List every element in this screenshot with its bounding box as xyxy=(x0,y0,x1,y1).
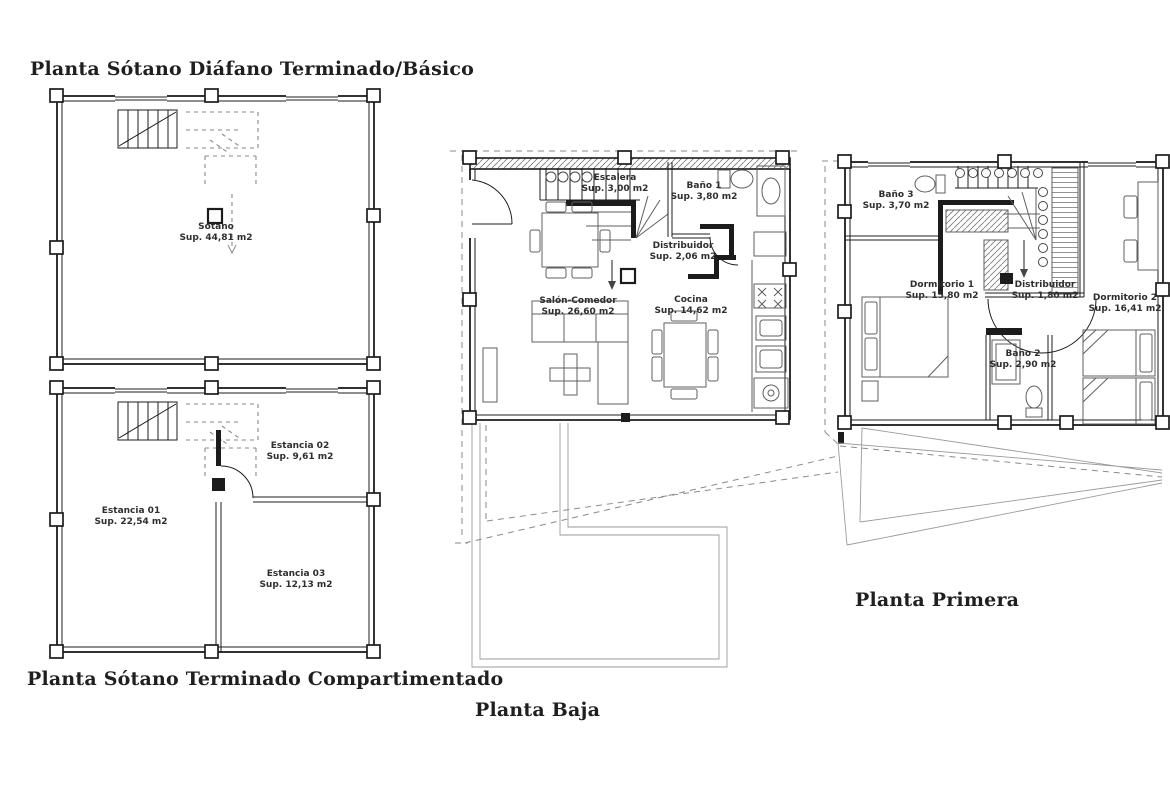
fridge-icon xyxy=(754,232,786,256)
room-area: Sup. 1,80 m2 xyxy=(1012,291,1079,302)
bed-icon xyxy=(862,297,948,401)
room-label-bano-2: Baño 2 Sup. 2,90 m2 xyxy=(990,349,1057,372)
room-label-dormitorio-2: Dormitorio 2 Sup. 16,41 m2 xyxy=(1088,293,1161,316)
room-label-salon-comedor: Salón-Comedor Sup. 26,60 m2 xyxy=(539,296,616,319)
room-label-estancia-01: Estancia 01 Sup. 22,54 m2 xyxy=(94,506,167,529)
room-area: Sup. 3,00 m2 xyxy=(582,184,649,195)
room-label-bano-3: Baño 3 Sup. 3,70 m2 xyxy=(863,190,930,213)
room-label-cocina: Cocina Sup. 14,62 m2 xyxy=(654,295,727,318)
bed-icon xyxy=(1083,378,1155,424)
room-area: Sup. 3,70 m2 xyxy=(863,201,930,212)
room-area: Sup. 3,80 m2 xyxy=(671,192,738,203)
room-area: Sup. 12,13 m2 xyxy=(259,580,332,591)
tv-bench-icon xyxy=(483,348,497,402)
room-name: Estancia 01 xyxy=(94,506,167,517)
plan-title-planta-primera: Planta Primera xyxy=(855,589,1019,611)
hob-icon xyxy=(754,284,786,308)
washer-icon xyxy=(754,378,788,408)
room-area: Sup. 16,41 m2 xyxy=(1088,304,1161,315)
room-name: Baño 3 xyxy=(863,190,930,201)
room-name: Dormitorio 2 xyxy=(1088,293,1161,304)
plan-title-sotano-compartimentado: Planta Sótano Terminado Compartimentado xyxy=(27,668,503,690)
entry-door-arc xyxy=(472,180,512,224)
desk-icon xyxy=(1124,182,1158,270)
room-label-dormitorio-1: Dormitorio 1 Sup. 15,80 m2 xyxy=(905,280,978,303)
room-name: Escalera xyxy=(582,173,649,184)
room-area: Sup. 44,81 m2 xyxy=(179,233,252,244)
room-label-bano-1: Baño 1 Sup. 3,80 m2 xyxy=(671,181,738,204)
plan-planta-baja-drawing xyxy=(450,151,838,667)
toilet-icon xyxy=(1026,386,1042,408)
ghost-stair-dashed xyxy=(186,404,258,478)
roof-projection-outline xyxy=(838,428,1162,545)
closet-icon xyxy=(946,210,1008,232)
room-area: Sup. 9,61 m2 xyxy=(267,452,334,463)
room-name: Baño 2 xyxy=(990,349,1057,360)
room-area: Sup. 14,62 m2 xyxy=(654,306,727,317)
room-area: Sup. 2,06 m2 xyxy=(650,252,717,263)
pillar-icon xyxy=(621,269,635,283)
room-area: Sup. 22,54 m2 xyxy=(94,517,167,528)
nightstand-icon xyxy=(862,381,878,401)
staircase-icon xyxy=(118,402,177,440)
kitchen-counter xyxy=(752,232,788,412)
room-name: Estancia 03 xyxy=(259,569,332,580)
kitchen-table-icon xyxy=(652,311,718,399)
plan-title-planta-baja: Planta Baja xyxy=(475,699,600,721)
room-area: Sup. 26,60 m2 xyxy=(539,307,616,318)
sink-icon xyxy=(757,166,785,216)
wardrobe-icon xyxy=(1052,168,1078,294)
room-name: Sótano xyxy=(179,222,252,233)
room-name: Distribuidor xyxy=(1012,280,1079,291)
coffee-table-icon xyxy=(550,368,590,381)
room-label-sotano: Sótano Sup. 44,81 m2 xyxy=(179,222,252,245)
room-label-estancia-02: Estancia 02 Sup. 9,61 m2 xyxy=(267,441,334,464)
bed-icon xyxy=(1083,330,1155,376)
room-name: Estancia 02 xyxy=(267,441,334,452)
room-name: Cocina xyxy=(654,295,727,306)
room-name: Distribuidor xyxy=(650,241,717,252)
room-label-estancia-03: Estancia 03 Sup. 12,13 m2 xyxy=(259,569,332,592)
room-area: Sup. 15,80 m2 xyxy=(905,291,978,302)
terrace-outline xyxy=(472,423,727,667)
double-door-arcs xyxy=(988,299,1096,353)
projection-dashed-lines xyxy=(465,456,838,543)
bathroom-2 xyxy=(986,328,1052,420)
staircase-icon xyxy=(118,110,177,148)
room-area: Sup. 2,90 m2 xyxy=(990,360,1057,371)
room-name: Salón-Comedor xyxy=(539,296,616,307)
partition-walls xyxy=(212,430,374,652)
room-label-distribuidor-baja: Distribuidor Sup. 2,06 m2 xyxy=(650,241,717,264)
floorplan-sheet: Planta Sótano Diáfano Terminado/Básico P… xyxy=(0,0,1170,785)
room-name: Baño 1 xyxy=(671,181,738,192)
room-label-distribuidor-primera: Distribuidor Sup. 1,80 m2 xyxy=(1012,280,1079,303)
plan-title-sotano-diafano: Planta Sótano Diáfano Terminado/Básico xyxy=(30,58,474,80)
room-label-escalera: Escalera Sup. 3,00 m2 xyxy=(582,173,649,196)
dining-table-icon xyxy=(530,202,610,278)
room-name: Dormitorio 1 xyxy=(905,280,978,291)
